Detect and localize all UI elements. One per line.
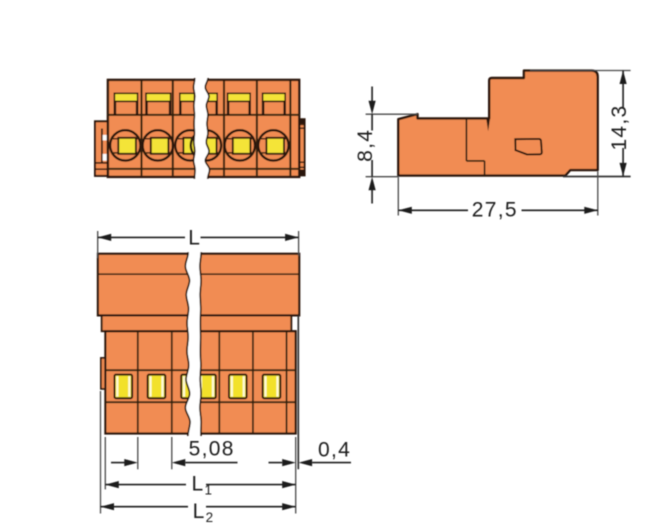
svg-text:14,3: 14,3 — [608, 104, 631, 150]
svg-text:8,4: 8,4 — [354, 129, 377, 162]
svg-text:0,4: 0,4 — [318, 439, 351, 462]
svg-text:5,08: 5,08 — [189, 437, 235, 460]
svg-text:27,5: 27,5 — [472, 199, 518, 222]
svg-text:L: L — [188, 227, 201, 250]
